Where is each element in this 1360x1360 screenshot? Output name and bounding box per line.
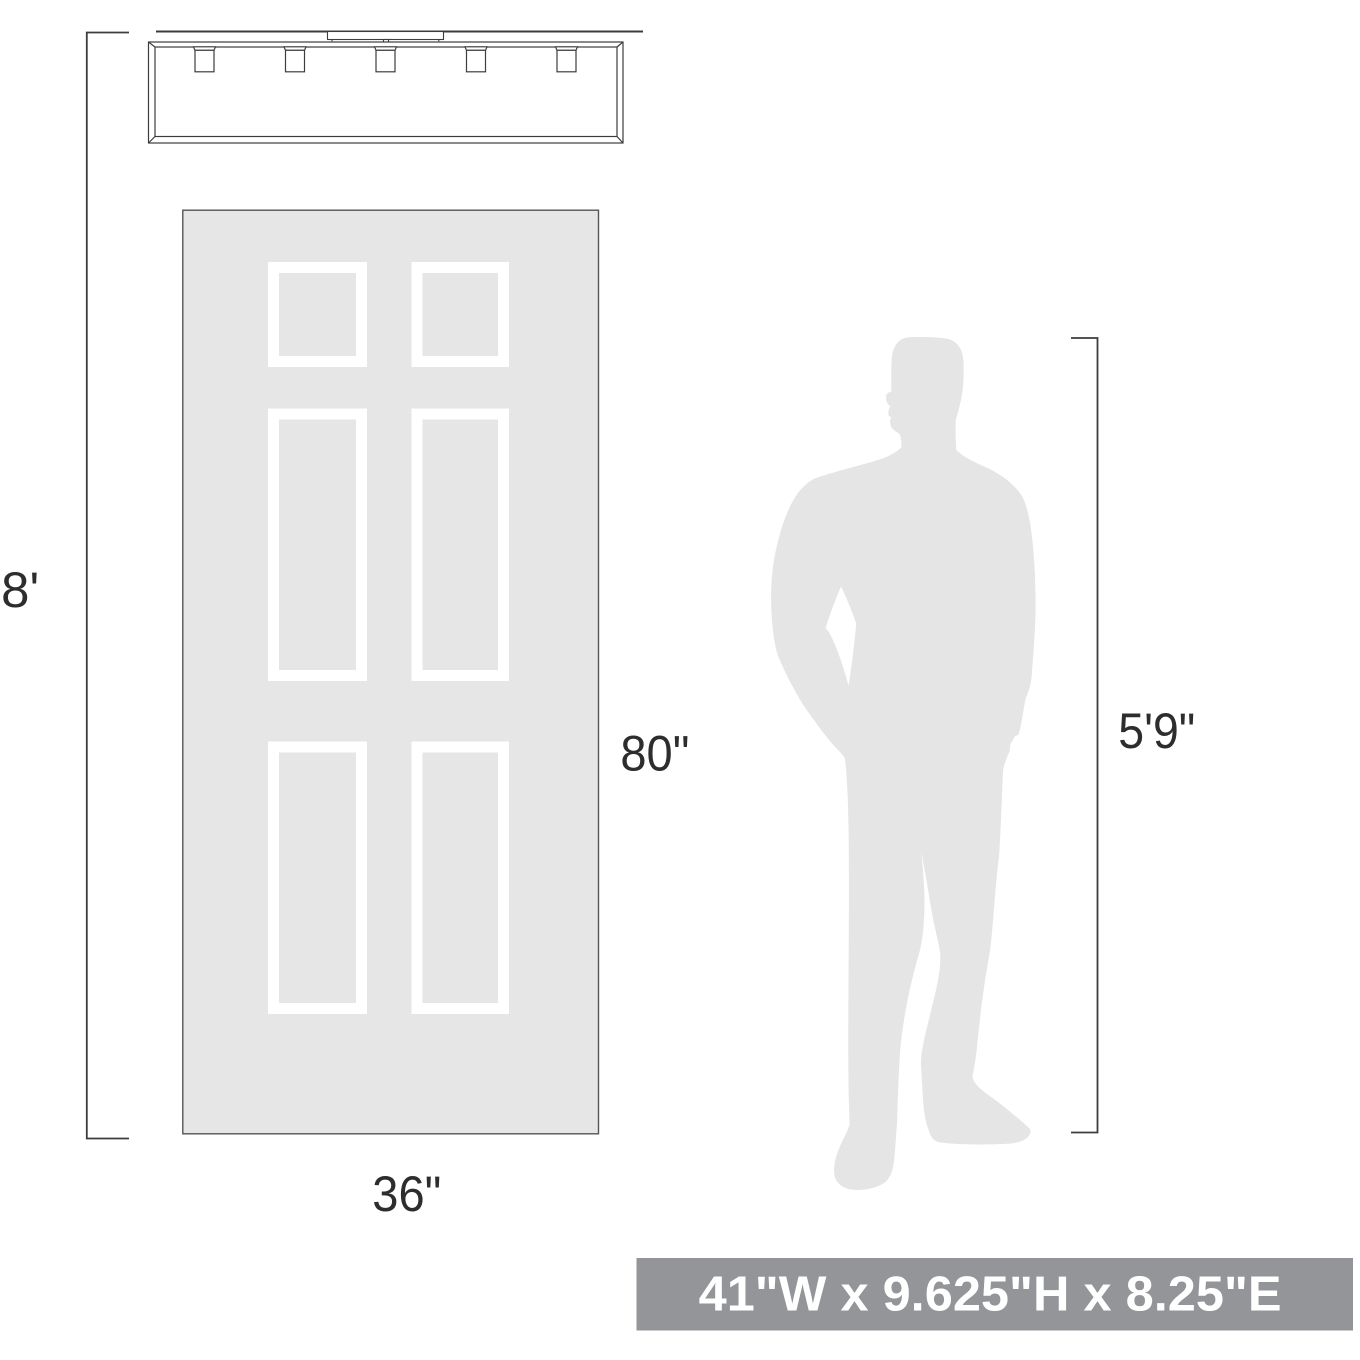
svg-text:41"W x 9.625"H x 8.25"E: 41"W x 9.625"H x 8.25"E bbox=[699, 1268, 1282, 1322]
svg-text:36": 36" bbox=[372, 1166, 441, 1222]
svg-text:80": 80" bbox=[620, 726, 689, 782]
svg-text:8': 8' bbox=[1, 562, 39, 618]
svg-text:5'9": 5'9" bbox=[1118, 703, 1195, 759]
